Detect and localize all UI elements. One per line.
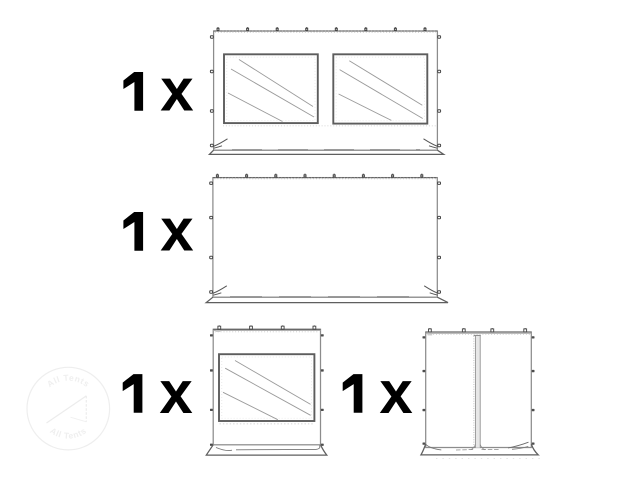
svg-text:x: x: [160, 197, 193, 264]
svg-text:All Tents: All Tents: [48, 425, 88, 440]
svg-text:x: x: [159, 359, 192, 426]
svg-text:x: x: [160, 57, 193, 124]
svg-text:All Tents: All Tents: [45, 372, 92, 389]
svg-text:x: x: [379, 359, 412, 426]
